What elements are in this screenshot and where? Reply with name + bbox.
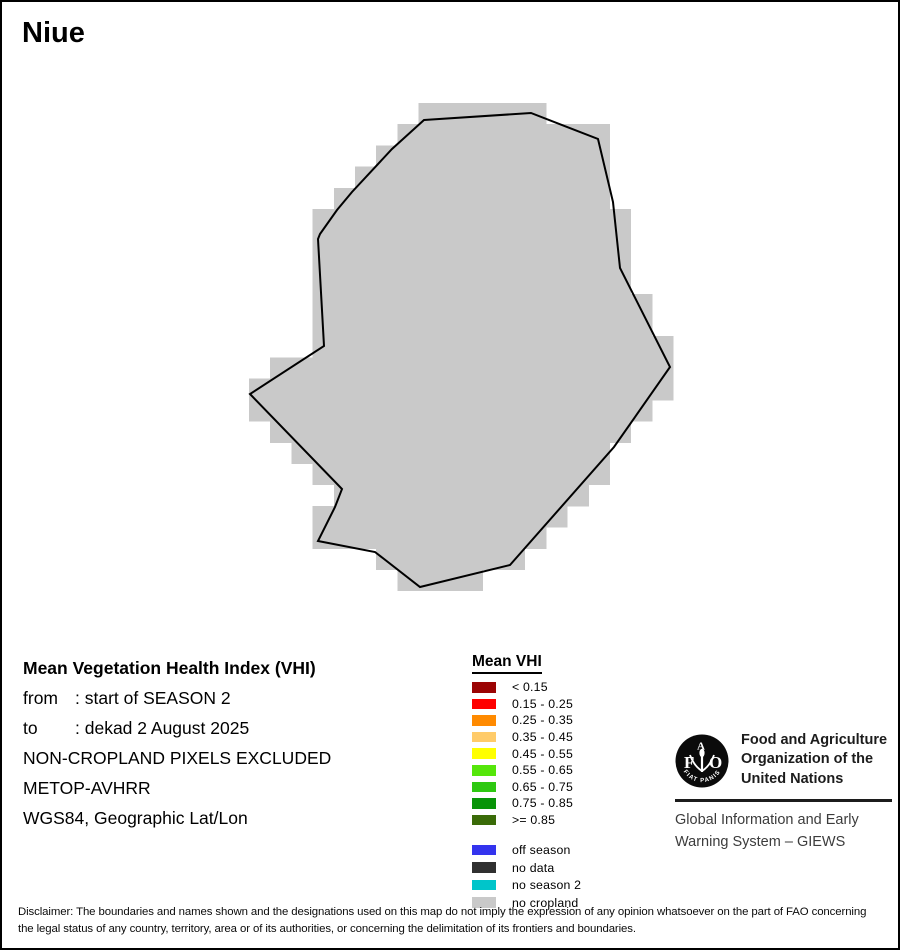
no-cropland-cell: [609, 357, 631, 379]
no-cropland-cell: [631, 336, 653, 358]
no-cropland-cell: [546, 273, 568, 295]
no-cropland-cell: [461, 442, 483, 464]
fao-divider-rule: [675, 799, 892, 802]
no-cropland-cell: [609, 336, 631, 358]
legend-class-label: off season: [512, 843, 571, 857]
no-cropland-cell: [440, 421, 462, 443]
no-cropland-cell: [482, 336, 504, 358]
no-cropland-cell: [588, 442, 610, 464]
no-cropland-cell: [461, 209, 483, 231]
no-cropland-cell: [419, 400, 441, 422]
no-cropland-cell: [313, 273, 335, 295]
legend-swatch: [472, 880, 496, 891]
no-cropland-cell: [334, 442, 356, 464]
no-cropland-cell: [419, 188, 441, 210]
no-cropland-cell: [355, 400, 377, 422]
no-cropland-cell: [397, 188, 419, 210]
no-cropland-cell: [546, 209, 568, 231]
legend-special-class-list: off seasonno datano season 2no cropland: [472, 841, 581, 911]
legend-class-label: 0.15 - 0.25: [512, 697, 573, 711]
fao-name-line: United Nations: [741, 770, 887, 789]
info-row-value: WGS84, Geographic Lat/Lon: [23, 808, 248, 828]
no-cropland-cell: [313, 379, 335, 401]
no-cropland-cell: [419, 167, 441, 189]
no-cropland-cell: [440, 527, 462, 549]
no-cropland-cell: [482, 188, 504, 210]
no-cropland-cell: [461, 251, 483, 273]
no-cropland-cell: [355, 357, 377, 379]
vhi-legend: Mean VHI < 0.150.15 - 0.250.25 - 0.350.3…: [472, 653, 581, 911]
no-cropland-cell: [461, 145, 483, 167]
no-cropland-cell: [355, 421, 377, 443]
no-cropland-cell: [461, 103, 483, 125]
no-cropland-cell: [525, 167, 547, 189]
no-cropland-cell: [334, 400, 356, 422]
no-cropland-cell: [419, 357, 441, 379]
no-cropland-cell: [397, 273, 419, 295]
no-cropland-cell: [503, 442, 525, 464]
no-cropland-cell: [482, 103, 504, 125]
legend-swatch: [472, 782, 496, 793]
no-cropland-cell: [482, 442, 504, 464]
info-row-value: NON-CROPLAND PIXELS EXCLUDED: [23, 748, 331, 768]
no-cropland-cell: [461, 315, 483, 337]
no-cropland-cell: [397, 209, 419, 231]
no-cropland-cell: [525, 315, 547, 337]
legend-row: < 0.15: [472, 679, 581, 696]
no-cropland-cell: [461, 294, 483, 316]
no-cropland-cell: [525, 230, 547, 252]
no-cropland-cell: [376, 506, 398, 528]
no-cropland-cell: [334, 379, 356, 401]
no-cropland-cell: [567, 251, 589, 273]
info-row: METOP-AVHRR: [23, 773, 331, 803]
no-cropland-cell: [440, 357, 462, 379]
no-cropland-cell: [609, 400, 631, 422]
no-cropland-cell: [588, 421, 610, 443]
fao-name-line: Food and Agriculture: [741, 731, 887, 750]
giews-caption: Global Information and Early Warning Sys…: [675, 810, 859, 853]
no-cropland-cell: [376, 251, 398, 273]
no-cropland-cell: [503, 357, 525, 379]
no-cropland-cell: [525, 357, 547, 379]
no-cropland-cell: [482, 527, 504, 549]
no-cropland-cell: [440, 315, 462, 337]
no-cropland-cell: [482, 485, 504, 507]
no-cropland-cell: [440, 548, 462, 570]
legend-class-label: 0.45 - 0.55: [512, 747, 573, 761]
no-cropland-cell: [482, 294, 504, 316]
legend-swatch: [472, 748, 496, 759]
no-cropland-cell: [397, 145, 419, 167]
legend-swatch: [472, 765, 496, 776]
no-cropland-cell: [461, 188, 483, 210]
legend-class-label: 0.25 - 0.35: [512, 713, 573, 727]
no-cropland-cell: [376, 400, 398, 422]
no-cropland-cell: [567, 145, 589, 167]
info-row: NON-CROPLAND PIXELS EXCLUDED: [23, 743, 331, 773]
no-cropland-cell: [567, 230, 589, 252]
legend-row: >= 0.85: [472, 812, 581, 829]
no-cropland-cell: [376, 463, 398, 485]
no-cropland-cell: [588, 294, 610, 316]
legend-class-label: >= 0.85: [512, 813, 555, 827]
legend-row: 0.55 - 0.65: [472, 762, 581, 779]
no-cropland-cell: [609, 379, 631, 401]
no-cropland-cell: [397, 251, 419, 273]
no-cropland-cell: [546, 124, 568, 146]
legend-swatch: [472, 862, 496, 873]
no-cropland-cell: [461, 336, 483, 358]
no-cropland-cell: [440, 485, 462, 507]
no-cropland-cell: [376, 230, 398, 252]
no-cropland-cell: [313, 421, 335, 443]
no-cropland-cell: [482, 167, 504, 189]
legend-class-label: 0.55 - 0.65: [512, 763, 573, 777]
no-cropland-cell: [588, 357, 610, 379]
no-cropland-cell: [334, 506, 356, 528]
no-cropland-cell: [503, 463, 525, 485]
no-cropland-cell: [440, 145, 462, 167]
no-cropland-cell: [546, 167, 568, 189]
no-cropland-cell: [525, 124, 547, 146]
no-cropland-cell: [334, 273, 356, 295]
no-cropland-cell: [397, 463, 419, 485]
no-cropland-cell: [525, 188, 547, 210]
no-cropland-cell: [376, 421, 398, 443]
no-cropland-cell: [588, 145, 610, 167]
no-cropland-cell: [355, 273, 377, 295]
no-cropland-cell: [503, 485, 525, 507]
legend-row: 0.35 - 0.45: [472, 729, 581, 746]
no-cropland-cell: [419, 145, 441, 167]
no-cropland-cell: [588, 188, 610, 210]
no-cropland-cell: [482, 209, 504, 231]
no-cropland-cell: [334, 315, 356, 337]
no-cropland-cell: [461, 273, 483, 295]
legend-class-label: 0.75 - 0.85: [512, 796, 573, 810]
no-cropland-cell: [376, 273, 398, 295]
legend-row: 0.25 - 0.35: [472, 712, 581, 729]
no-cropland-cell: [334, 230, 356, 252]
no-cropland-cell: [525, 251, 547, 273]
no-cropland-cell: [355, 315, 377, 337]
no-cropland-cell: [503, 167, 525, 189]
legend-row: 0.15 - 0.25: [472, 696, 581, 713]
no-cropland-cell: [503, 527, 525, 549]
no-cropland-cell: [440, 379, 462, 401]
legend-swatch: [472, 699, 496, 710]
legend-class-label: no season 2: [512, 878, 581, 892]
giews-line: Global Information and Early: [675, 810, 859, 832]
no-cropland-cell: [419, 569, 441, 591]
no-cropland-cell: [546, 400, 568, 422]
no-cropland-cell: [334, 336, 356, 358]
fao-name: Food and Agriculture Organization of the…: [741, 731, 887, 789]
no-cropland-cell: [440, 294, 462, 316]
legend-class-label: 0.35 - 0.45: [512, 730, 573, 744]
no-cropland-cell: [546, 463, 568, 485]
no-cropland-cell: [376, 379, 398, 401]
no-cropland-cell: [376, 294, 398, 316]
legend-class-label: 0.65 - 0.75: [512, 780, 573, 794]
no-cropland-cell: [546, 251, 568, 273]
no-cropland-cell: [609, 294, 631, 316]
no-cropland-cell: [546, 442, 568, 464]
info-row: from: start of SEASON 2: [23, 683, 331, 713]
no-cropland-cell: [440, 463, 462, 485]
no-cropland-cell: [419, 463, 441, 485]
legend-row: no data: [472, 859, 581, 877]
no-cropland-cell: [440, 103, 462, 125]
no-cropland-cell: [397, 506, 419, 528]
no-cropland-cell: [567, 273, 589, 295]
no-cropland-cell: [440, 230, 462, 252]
fao-logo: F A O FIAT PANIS: [674, 733, 730, 789]
no-cropland-cell: [291, 442, 313, 464]
no-cropland-cell: [503, 188, 525, 210]
no-cropland-cell: [397, 379, 419, 401]
no-cropland-cell: [503, 379, 525, 401]
no-cropland-cell: [503, 273, 525, 295]
no-cropland-cell: [609, 315, 631, 337]
legend-swatch: [472, 798, 496, 809]
no-cropland-cell: [482, 463, 504, 485]
page: Niue Mean Vegetation Health Index (VHI) …: [0, 0, 900, 950]
no-cropland-cell: [461, 379, 483, 401]
no-cropland-cell: [291, 400, 313, 422]
no-cropland-cell: [397, 548, 419, 570]
no-cropland-cell: [334, 421, 356, 443]
info-rows: from: start of SEASON 2to: dekad 2 Augus…: [23, 683, 331, 833]
map-info-block: Mean Vegetation Health Index (VHI) from:…: [23, 653, 331, 833]
legend-row: no season 2: [472, 876, 581, 894]
no-cropland-cell: [525, 400, 547, 422]
no-cropland-cell: [546, 294, 568, 316]
no-cropland-cell: [376, 336, 398, 358]
no-cropland-cell: [482, 421, 504, 443]
legend-swatch: [472, 732, 496, 743]
no-cropland-cell: [567, 167, 589, 189]
no-cropland-cell: [525, 145, 547, 167]
legend-swatch: [472, 682, 496, 693]
info-row-label: to: [23, 713, 75, 743]
info-row-value: : start of SEASON 2: [75, 688, 231, 708]
no-cropland-cell: [546, 315, 568, 337]
no-cropland-cell: [567, 188, 589, 210]
no-cropland-cell: [419, 251, 441, 273]
no-cropland-cell: [376, 357, 398, 379]
no-cropland-cell: [355, 485, 377, 507]
no-cropland-cell: [525, 273, 547, 295]
no-cropland-cell: [567, 336, 589, 358]
no-cropland-cell: [482, 400, 504, 422]
no-cropland-cell: [503, 421, 525, 443]
no-cropland-cell: [419, 548, 441, 570]
no-cropland-cell: [355, 230, 377, 252]
no-cropland-cell: [567, 421, 589, 443]
no-cropland-cell: [397, 485, 419, 507]
no-cropland-cell: [440, 209, 462, 231]
map-raster-no-cropland: [249, 103, 674, 591]
no-cropland-cell: [376, 527, 398, 549]
no-cropland-cell: [525, 485, 547, 507]
no-cropland-cell: [397, 421, 419, 443]
no-cropland-cell: [503, 506, 525, 528]
no-cropland-cell: [567, 379, 589, 401]
no-cropland-cell: [461, 400, 483, 422]
legend-row: 0.75 - 0.85: [472, 795, 581, 812]
legend-swatch: [472, 815, 496, 826]
no-cropland-cell: [461, 506, 483, 528]
no-cropland-cell: [270, 379, 292, 401]
no-cropland-cell: [588, 209, 610, 231]
no-cropland-cell: [355, 463, 377, 485]
no-cropland-cell: [313, 400, 335, 422]
no-cropland-cell: [567, 294, 589, 316]
no-cropland-cell: [419, 442, 441, 464]
no-cropland-cell: [546, 145, 568, 167]
no-cropland-cell: [461, 527, 483, 549]
no-cropland-cell: [482, 230, 504, 252]
no-cropland-cell: [461, 230, 483, 252]
no-cropland-cell: [440, 336, 462, 358]
no-cropland-cell: [419, 336, 441, 358]
no-cropland-cell: [567, 463, 589, 485]
no-cropland-cell: [461, 463, 483, 485]
no-cropland-cell: [291, 379, 313, 401]
no-cropland-cell: [440, 188, 462, 210]
no-cropland-cell: [503, 230, 525, 252]
no-cropland-cell: [419, 124, 441, 146]
no-cropland-cell: [546, 336, 568, 358]
no-cropland-cell: [440, 506, 462, 528]
info-row-value: : dekad 2 August 2025: [75, 718, 249, 738]
no-cropland-cell: [419, 421, 441, 443]
no-cropland-cell: [525, 209, 547, 231]
disclaimer-text: Disclaimer: The boundaries and names sho…: [18, 904, 876, 937]
no-cropland-cell: [588, 379, 610, 401]
no-cropland-cell: [313, 357, 335, 379]
no-cropland-cell: [313, 251, 335, 273]
no-cropland-cell: [397, 336, 419, 358]
no-cropland-cell: [567, 209, 589, 231]
no-cropland-cell: [440, 442, 462, 464]
no-cropland-cell: [419, 485, 441, 507]
no-cropland-cell: [270, 421, 292, 443]
no-cropland-cell: [419, 506, 441, 528]
no-cropland-cell: [525, 506, 547, 528]
no-cropland-cell: [397, 167, 419, 189]
no-cropland-cell: [588, 336, 610, 358]
no-cropland-cell: [567, 400, 589, 422]
no-cropland-cell: [588, 463, 610, 485]
no-cropland-cell: [482, 145, 504, 167]
no-cropland-cell: [588, 315, 610, 337]
no-cropland-cell: [503, 294, 525, 316]
no-cropland-cell: [355, 188, 377, 210]
no-cropland-cell: [525, 294, 547, 316]
no-cropland-cell: [376, 209, 398, 231]
no-cropland-cell: [525, 442, 547, 464]
no-cropland-cell: [482, 506, 504, 528]
fao-name-line: Organization of the: [741, 750, 887, 769]
no-cropland-cell: [609, 230, 631, 252]
no-cropland-cell: [397, 527, 419, 549]
legend-title: Mean VHI: [472, 653, 542, 674]
no-cropland-cell: [440, 400, 462, 422]
no-cropland-cell: [355, 209, 377, 231]
no-cropland-cell: [482, 273, 504, 295]
no-cropland-cell: [376, 485, 398, 507]
no-cropland-cell: [546, 421, 568, 443]
no-cropland-cell: [376, 188, 398, 210]
no-cropland-cell: [546, 230, 568, 252]
no-cropland-cell: [313, 294, 335, 316]
no-cropland-cell: [503, 209, 525, 231]
no-cropland-cell: [546, 506, 568, 528]
no-cropland-cell: [588, 400, 610, 422]
no-cropland-cell: [461, 167, 483, 189]
no-cropland-cell: [461, 357, 483, 379]
no-cropland-cell: [334, 251, 356, 273]
no-cropland-cell: [546, 379, 568, 401]
no-cropland-cell: [440, 273, 462, 295]
no-cropland-cell: [397, 294, 419, 316]
legend-swatch: [472, 845, 496, 856]
no-cropland-cell: [631, 357, 653, 379]
giews-line: Warning System – GIEWS: [675, 832, 859, 854]
no-cropland-cell: [334, 294, 356, 316]
no-cropland-cell: [503, 315, 525, 337]
no-cropland-cell: [397, 400, 419, 422]
no-cropland-cell: [419, 230, 441, 252]
no-cropland-cell: [419, 209, 441, 231]
no-cropland-cell: [397, 315, 419, 337]
no-cropland-cell: [567, 315, 589, 337]
no-cropland-cell: [419, 527, 441, 549]
no-cropland-cell: [355, 442, 377, 464]
no-cropland-cell: [567, 442, 589, 464]
page-title: Niue: [22, 16, 85, 50]
no-cropland-cell: [355, 506, 377, 528]
no-cropland-cell: [503, 336, 525, 358]
no-cropland-cell: [525, 379, 547, 401]
no-cropland-cell: [525, 336, 547, 358]
legend-row: 0.45 - 0.55: [472, 745, 581, 762]
no-cropland-cell: [355, 379, 377, 401]
no-cropland-cell: [609, 209, 631, 231]
no-cropland-cell: [525, 421, 547, 443]
info-row: to: dekad 2 August 2025: [23, 713, 331, 743]
no-cropland-cell: [419, 379, 441, 401]
no-cropland-cell: [376, 167, 398, 189]
legend-class-label: < 0.15: [512, 680, 548, 694]
no-cropland-cell: [419, 294, 441, 316]
no-cropland-cell: [376, 442, 398, 464]
info-row-label: from: [23, 683, 75, 713]
no-cropland-cell: [334, 357, 356, 379]
no-cropland-cell: [397, 230, 419, 252]
no-cropland-cell: [503, 251, 525, 273]
no-cropland-cell: [397, 442, 419, 464]
legend-class-list: < 0.150.15 - 0.250.25 - 0.350.35 - 0.450…: [472, 679, 581, 828]
no-cropland-cell: [546, 188, 568, 210]
no-cropland-cell: [313, 463, 335, 485]
no-cropland-cell: [503, 400, 525, 422]
legend-class-label: no data: [512, 861, 554, 875]
no-cropland-cell: [482, 124, 504, 146]
